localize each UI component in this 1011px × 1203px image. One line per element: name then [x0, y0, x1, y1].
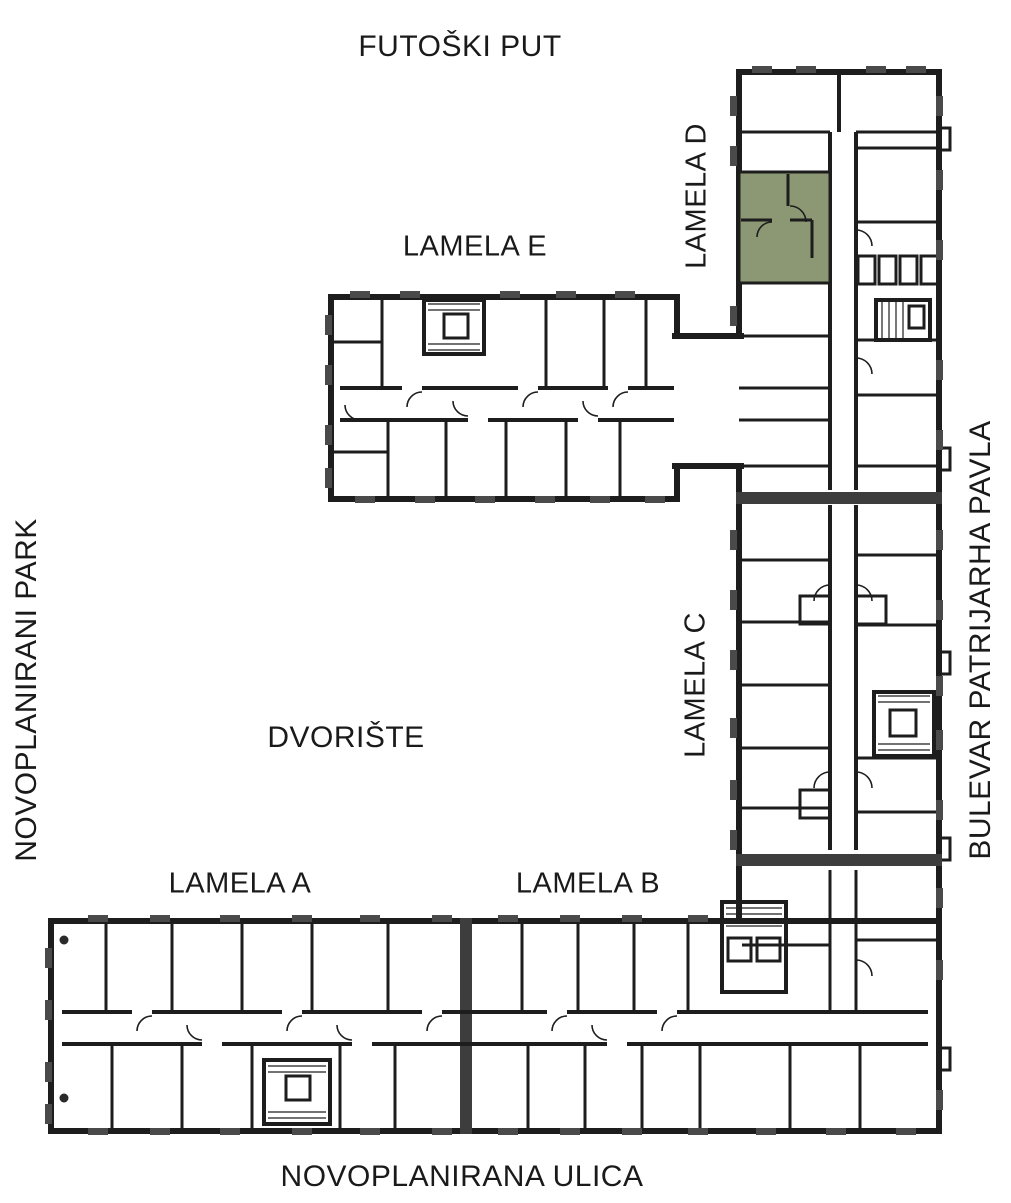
lamela-e-building [331, 297, 744, 499]
street-label-right: BULEVAR PATRIJARHA PAVLA [964, 420, 998, 859]
courtyard-label: DVORIŠTE [267, 721, 424, 755]
building-label-lamela-b: LAMELA B [516, 868, 660, 901]
separator-a-b [460, 918, 472, 1134]
building-label-lamela-e: LAMELA E [403, 231, 547, 264]
separator-d-c [736, 492, 942, 504]
lamela-d-highlighted-unit[interactable] [739, 172, 830, 283]
street-label-top: FUTOŠKI PUT [358, 30, 561, 64]
highlighted-unit-area[interactable] [739, 172, 830, 283]
floor-plan-drawing [0, 0, 1011, 1203]
street-label-left: NOVOPLANIRANI PARK [10, 518, 44, 862]
building-label-lamela-d: LAMELA D [681, 123, 714, 269]
building-label-lamela-a: LAMELA A [169, 868, 312, 901]
bottom-slab-building [51, 921, 939, 1131]
building-label-lamela-c: LAMELA C [680, 612, 713, 758]
street-label-bottom: NOVOPLANIRANA ULICA [281, 1160, 644, 1194]
separator-c-b [736, 854, 942, 866]
column-dot [60, 936, 69, 945]
column-dot [60, 1094, 69, 1103]
site-plan: FUTOŠKI PUT NOVOPLANIRANI PARK BULEVAR P… [0, 0, 1011, 1203]
